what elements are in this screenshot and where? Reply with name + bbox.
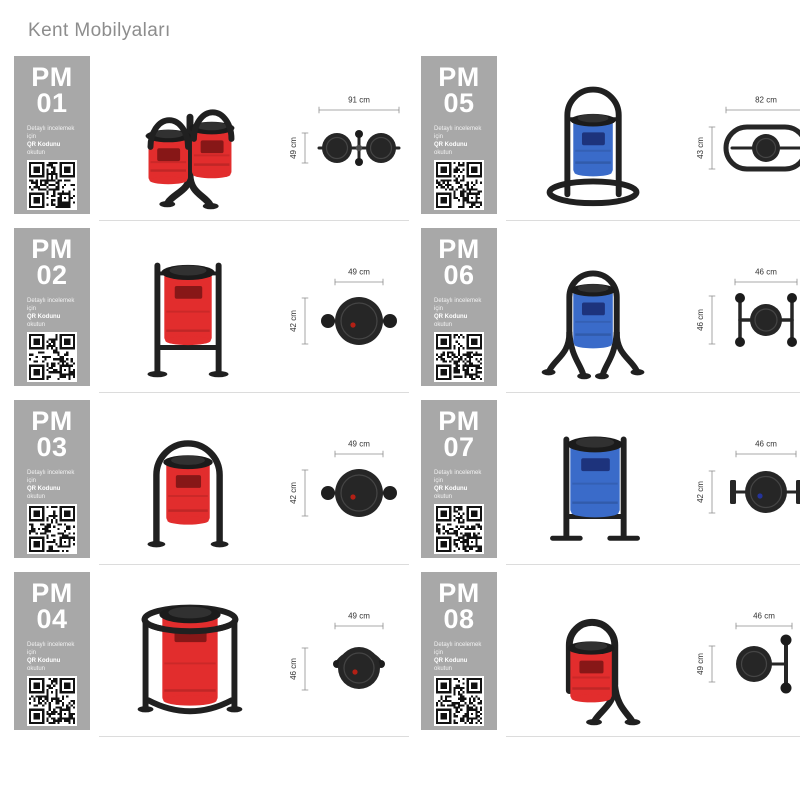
product-row: PM 03 Detaylı incelemek içinQR Kodunu ok… bbox=[14, 400, 409, 566]
dim-width-label: 91 cm bbox=[348, 96, 370, 105]
dim-height-label: 46 cm bbox=[289, 658, 298, 680]
product-row-content: 49 cm46 cm bbox=[99, 572, 409, 737]
product-code: PM 04 bbox=[31, 581, 73, 632]
product-code-number: 01 bbox=[31, 91, 73, 117]
qr-code-icon bbox=[27, 332, 77, 382]
qr-code-icon bbox=[27, 504, 77, 554]
top-view-diagram: 46 cm46 cm bbox=[686, 258, 800, 362]
qr-note-line1: Detaylı incelemek için bbox=[27, 470, 74, 484]
trash-bin-illustration bbox=[99, 400, 279, 558]
product-grid: PM 01 Detaylı incelemek içinQR Kodunu ok… bbox=[14, 56, 788, 738]
qr-note-bold: QR Kodunu bbox=[27, 142, 60, 148]
product-code-prefix: PM bbox=[31, 409, 73, 435]
qr-note-rest: okutun bbox=[27, 494, 45, 500]
dim-height-label: 49 cm bbox=[289, 137, 298, 159]
dim-width-label: 82 cm bbox=[755, 96, 777, 105]
qr-note-bold: QR Kodunu bbox=[27, 658, 60, 664]
trash-bin-illustration bbox=[506, 56, 686, 214]
dimension-diagram: 49 cm42 cm bbox=[279, 228, 409, 392]
qr-note: Detaylı incelemek içinQR Kodunu okutun bbox=[27, 126, 77, 157]
dim-height-label: 46 cm bbox=[696, 309, 705, 331]
qr-note: Detaylı incelemek içinQR Kodunu okutun bbox=[434, 470, 484, 501]
product-card: PM 01 Detaylı incelemek içinQR Kodunu ok… bbox=[14, 56, 90, 214]
product-image-area bbox=[506, 228, 686, 392]
product-code-number: 04 bbox=[31, 607, 73, 633]
qr-note-bold: QR Kodunu bbox=[434, 486, 467, 492]
product-row-content: 46 cm42 cm bbox=[506, 400, 800, 565]
qr-note: Detaylı incelemek içinQR Kodunu okutun bbox=[434, 298, 484, 329]
dimension-diagram: 91 cm49 cm bbox=[279, 56, 409, 220]
top-view-diagram: 49 cm46 cm bbox=[279, 602, 409, 706]
product-code-prefix: PM bbox=[438, 237, 480, 263]
qr-note-rest: okutun bbox=[434, 494, 452, 500]
qr-note-line1: Detaylı incelemek için bbox=[27, 298, 74, 312]
qr-note-bold: QR Kodunu bbox=[434, 314, 467, 320]
top-view-diagram: 82 cm43 cm bbox=[686, 86, 800, 190]
trash-bin-illustration bbox=[99, 56, 279, 214]
qr-note: Detaylı incelemek içinQR Kodunu okutun bbox=[434, 642, 484, 673]
qr-code-icon bbox=[27, 160, 77, 210]
product-card: PM 08 Detaylı incelemek içinQR Kodunu ok… bbox=[421, 572, 497, 730]
qr-note: Detaylı incelemek içinQR Kodunu okutun bbox=[434, 126, 484, 157]
qr-note-rest: okutun bbox=[434, 322, 452, 328]
product-code: PM 03 bbox=[31, 409, 73, 460]
product-code-number: 06 bbox=[438, 263, 480, 289]
product-card: PM 04 Detaylı incelemek içinQR Kodunu ok… bbox=[14, 572, 90, 730]
product-code: PM 06 bbox=[438, 237, 480, 288]
dim-width-label: 49 cm bbox=[348, 268, 370, 277]
qr-code-icon bbox=[434, 504, 484, 554]
product-card: PM 03 Detaylı incelemek içinQR Kodunu ok… bbox=[14, 400, 90, 558]
product-code-number: 08 bbox=[438, 607, 480, 633]
trash-bin-illustration bbox=[99, 572, 279, 730]
product-code-number: 03 bbox=[31, 435, 73, 461]
product-row-content: 91 cm49 cm bbox=[99, 56, 409, 221]
product-image-area bbox=[99, 56, 279, 220]
product-image-area bbox=[99, 228, 279, 392]
product-row: PM 06 Detaylı incelemek içinQR Kodunu ok… bbox=[421, 228, 800, 394]
dim-height-label: 42 cm bbox=[289, 482, 298, 504]
product-image-area bbox=[99, 400, 279, 564]
qr-note-line1: Detaylı incelemek için bbox=[434, 298, 481, 312]
product-code-prefix: PM bbox=[438, 65, 480, 91]
product-card: PM 02 Detaylı incelemek içinQR Kodunu ok… bbox=[14, 228, 90, 386]
qr-code-icon bbox=[434, 676, 484, 726]
product-row: PM 04 Detaylı incelemek içinQR Kodunu ok… bbox=[14, 572, 409, 738]
product-row: PM 02 Detaylı incelemek içinQR Kodunu ok… bbox=[14, 228, 409, 394]
dim-width-label: 49 cm bbox=[348, 440, 370, 449]
product-code-prefix: PM bbox=[31, 65, 73, 91]
qr-note-bold: QR Kodunu bbox=[27, 486, 60, 492]
page-title: Kent Mobilyaları bbox=[28, 20, 171, 42]
qr-note-line1: Detaylı incelemek için bbox=[434, 470, 481, 484]
product-code-prefix: PM bbox=[31, 581, 73, 607]
product-row-content: 49 cm42 cm bbox=[99, 228, 409, 393]
product-code: PM 07 bbox=[438, 409, 480, 460]
product-image-area bbox=[99, 572, 279, 736]
dimension-diagram: 82 cm43 cm bbox=[686, 56, 800, 220]
trash-bin-illustration bbox=[99, 228, 279, 386]
product-code: PM 02 bbox=[31, 237, 73, 288]
qr-note-rest: okutun bbox=[27, 666, 45, 672]
top-view-diagram: 46 cm42 cm bbox=[686, 430, 800, 534]
top-view-diagram: 46 cm49 cm bbox=[686, 602, 800, 706]
product-row-content: 46 cm46 cm bbox=[506, 228, 800, 393]
product-row: PM 01 Detaylı incelemek içinQR Kodunu ok… bbox=[14, 56, 409, 222]
dim-width-label: 49 cm bbox=[348, 612, 370, 621]
trash-bin-illustration bbox=[506, 400, 686, 558]
top-view-diagram: 91 cm49 cm bbox=[279, 86, 409, 190]
product-code-number: 07 bbox=[438, 435, 480, 461]
product-card: PM 07 Detaylı incelemek içinQR Kodunu ok… bbox=[421, 400, 497, 558]
dim-width-label: 46 cm bbox=[755, 440, 777, 449]
product-code: PM 01 bbox=[31, 65, 73, 116]
dim-width-label: 46 cm bbox=[755, 268, 777, 277]
product-row: PM 07 Detaylı incelemek içinQR Kodunu ok… bbox=[421, 400, 800, 566]
top-view-diagram: 49 cm42 cm bbox=[279, 258, 409, 362]
product-card: PM 06 Detaylı incelemek içinQR Kodunu ok… bbox=[421, 228, 497, 386]
top-view-diagram: 49 cm42 cm bbox=[279, 430, 409, 534]
qr-note-bold: QR Kodunu bbox=[434, 658, 467, 664]
qr-note-rest: okutun bbox=[27, 150, 45, 156]
trash-bin-illustration bbox=[506, 572, 686, 730]
product-card: PM 05 Detaylı incelemek içinQR Kodunu ok… bbox=[421, 56, 497, 214]
dim-height-label: 49 cm bbox=[696, 653, 705, 675]
dimension-diagram: 49 cm46 cm bbox=[279, 572, 409, 736]
product-image-area bbox=[506, 56, 686, 220]
dim-width-label: 46 cm bbox=[753, 612, 775, 621]
product-code-prefix: PM bbox=[438, 581, 480, 607]
dim-height-label: 42 cm bbox=[696, 481, 705, 503]
product-row-content: 82 cm43 cm bbox=[506, 56, 800, 221]
product-row-content: 46 cm49 cm bbox=[506, 572, 800, 737]
qr-code-icon bbox=[434, 160, 484, 210]
qr-note: Detaylı incelemek içinQR Kodunu okutun bbox=[27, 470, 77, 501]
product-image-area bbox=[506, 572, 686, 736]
product-row-content: 49 cm42 cm bbox=[99, 400, 409, 565]
product-code: PM 05 bbox=[438, 65, 480, 116]
qr-code-icon bbox=[27, 676, 77, 726]
product-code-number: 02 bbox=[31, 263, 73, 289]
qr-note-line1: Detaylı incelemek için bbox=[434, 642, 481, 656]
product-image-area bbox=[506, 400, 686, 564]
qr-note-rest: okutun bbox=[434, 150, 452, 156]
qr-note-line1: Detaylı incelemek için bbox=[434, 126, 481, 140]
dimension-diagram: 49 cm42 cm bbox=[279, 400, 409, 564]
trash-bin-illustration bbox=[506, 228, 686, 386]
dimension-diagram: 46 cm49 cm bbox=[686, 572, 800, 736]
qr-note-bold: QR Kodunu bbox=[434, 142, 467, 148]
product-code-prefix: PM bbox=[438, 409, 480, 435]
qr-note-bold: QR Kodunu bbox=[27, 314, 60, 320]
product-code: PM 08 bbox=[438, 581, 480, 632]
qr-note-line1: Detaylı incelemek için bbox=[27, 642, 74, 656]
product-code-prefix: PM bbox=[31, 237, 73, 263]
dim-height-label: 42 cm bbox=[289, 310, 298, 332]
product-row: PM 08 Detaylı incelemek içinQR Kodunu ok… bbox=[421, 572, 800, 738]
qr-note-line1: Detaylı incelemek için bbox=[27, 126, 74, 140]
qr-note: Detaylı incelemek içinQR Kodunu okutun bbox=[27, 298, 77, 329]
product-row: PM 05 Detaylı incelemek içinQR Kodunu ok… bbox=[421, 56, 800, 222]
dimension-diagram: 46 cm46 cm bbox=[686, 228, 800, 392]
product-code-number: 05 bbox=[438, 91, 480, 117]
qr-note-rest: okutun bbox=[434, 666, 452, 672]
qr-code-icon bbox=[434, 332, 484, 382]
qr-note: Detaylı incelemek içinQR Kodunu okutun bbox=[27, 642, 77, 673]
dim-height-label: 43 cm bbox=[696, 137, 705, 159]
dimension-diagram: 46 cm42 cm bbox=[686, 400, 800, 564]
qr-note-rest: okutun bbox=[27, 322, 45, 328]
